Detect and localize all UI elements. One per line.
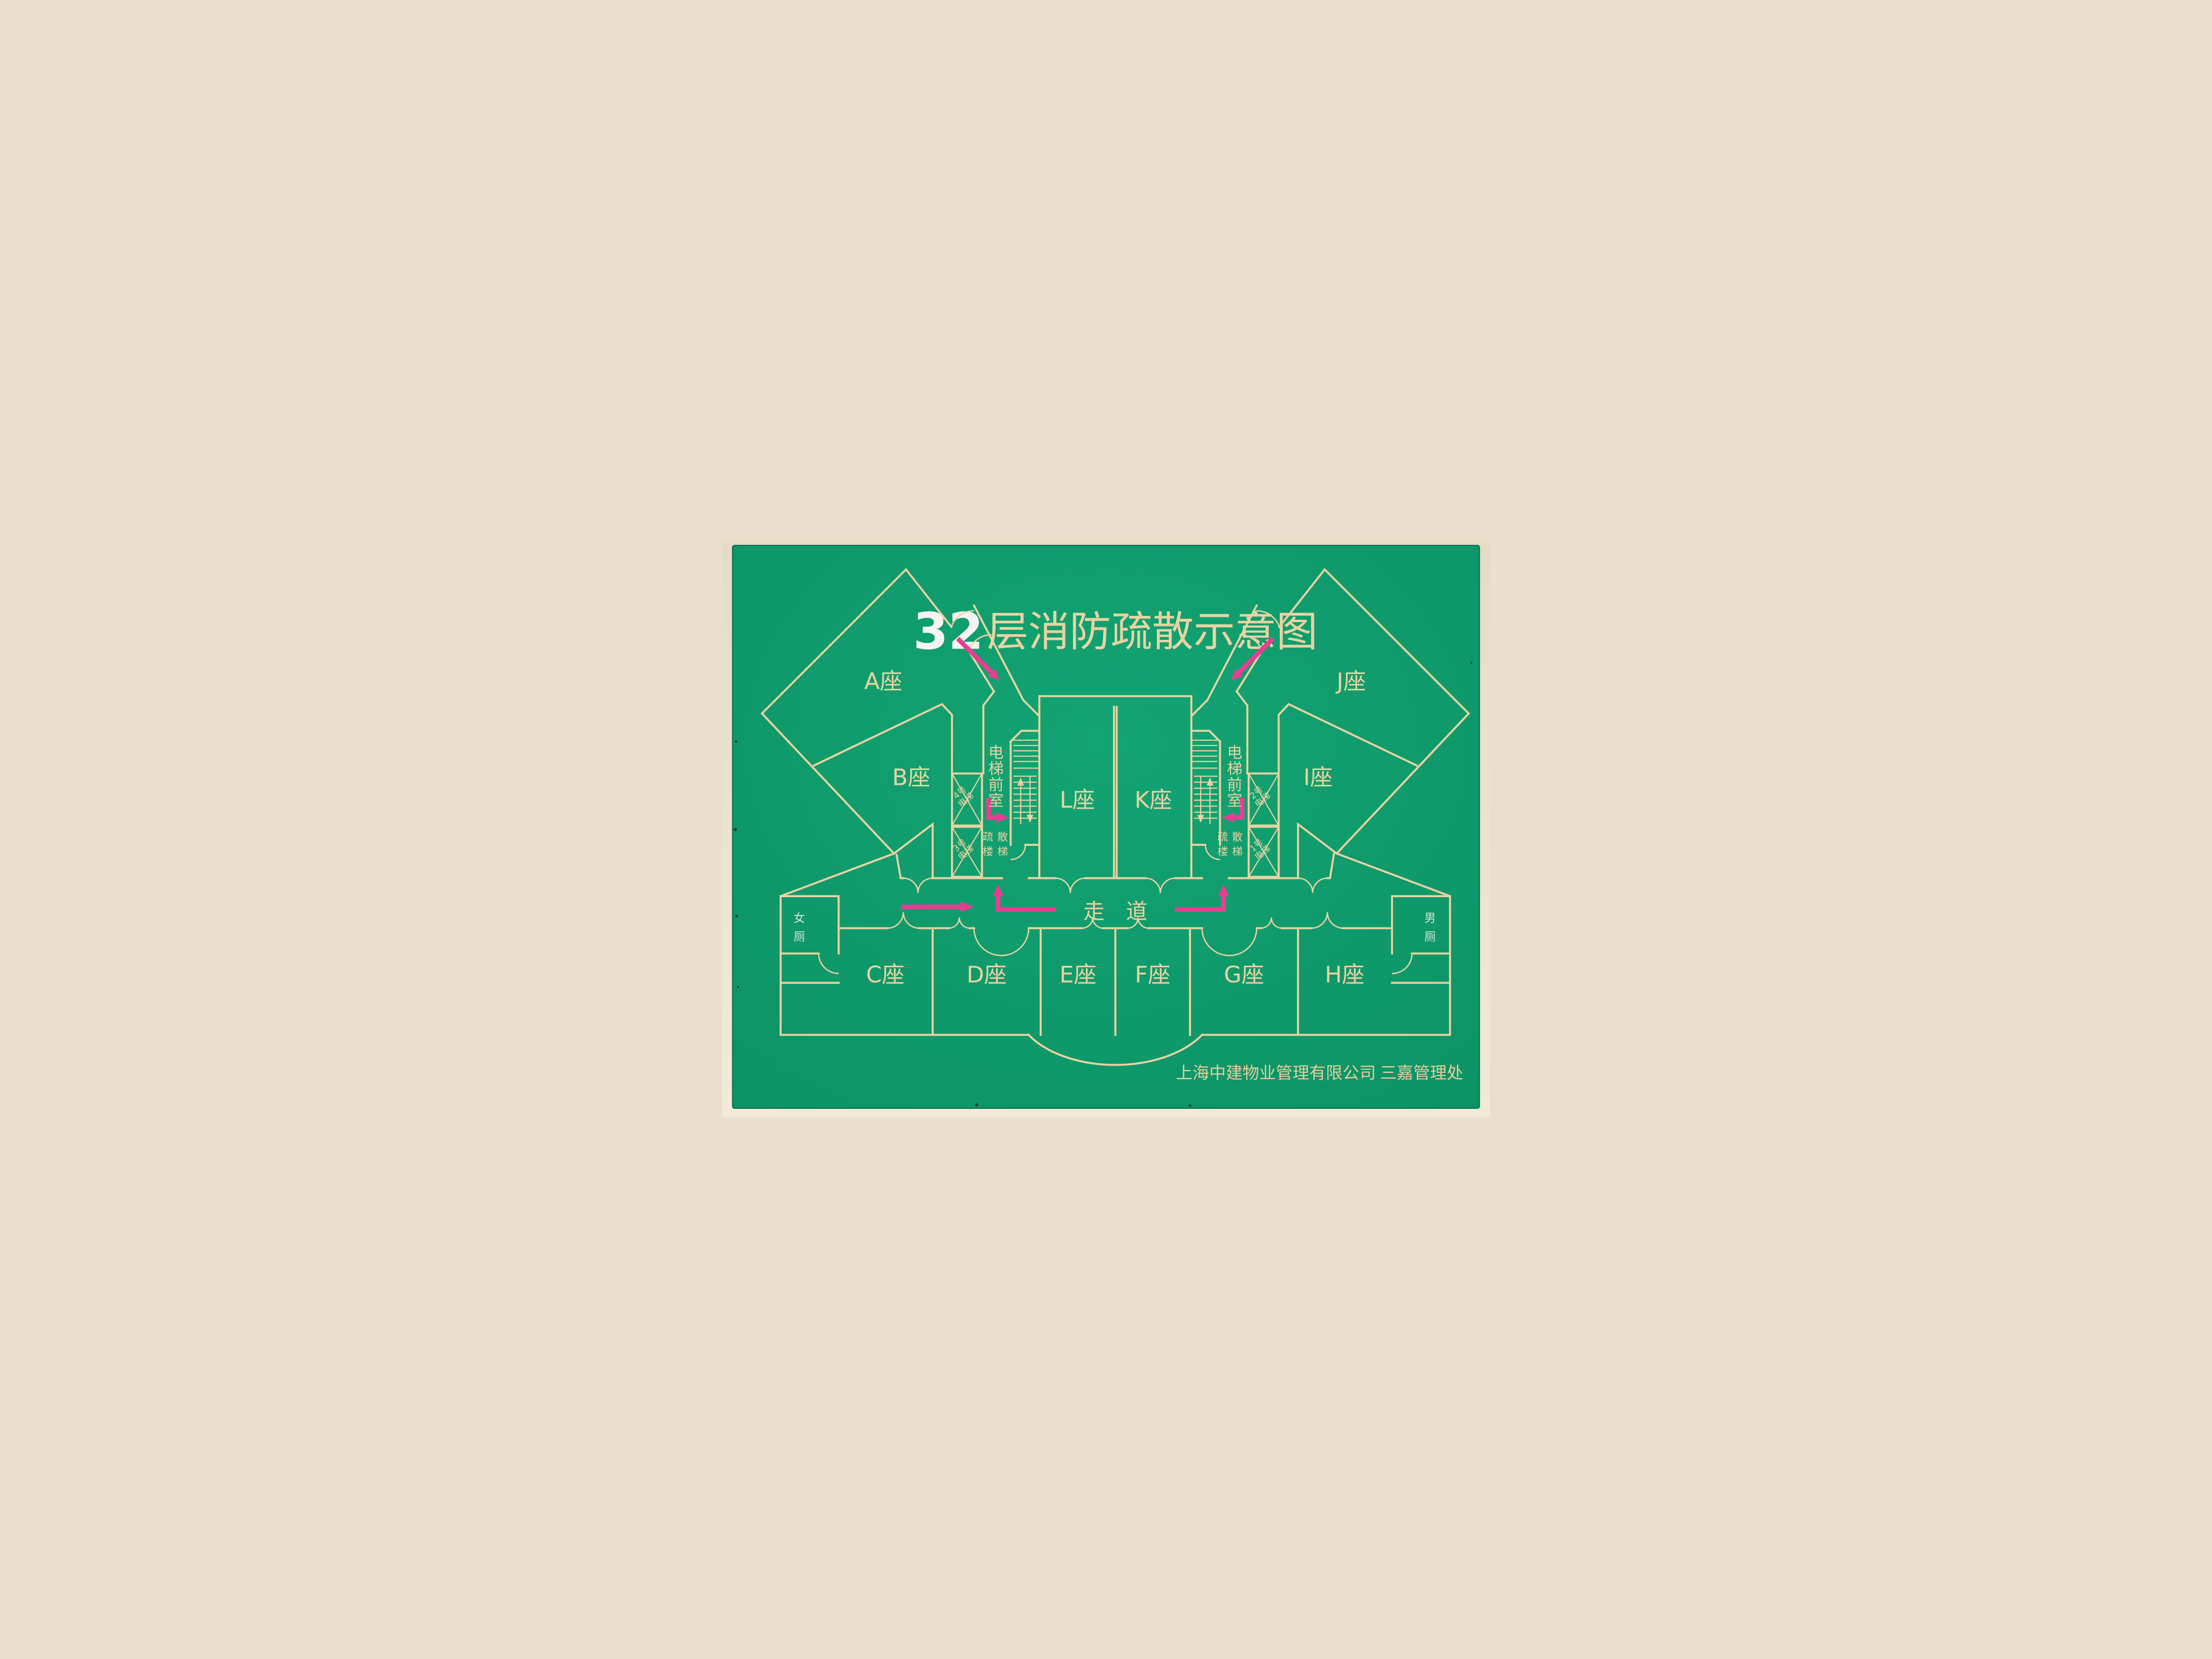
stair-label-left-char: 楼: [983, 846, 993, 858]
fire-evacuation-floor-plan: 32 层消防疏散示意图: [722, 541, 1490, 1118]
photo-of-evacuation-sign: 32 层消防疏散示意图: [722, 541, 1490, 1118]
lobby-left-char: 电: [988, 744, 1004, 762]
stair-label-right-char: 楼: [1217, 846, 1228, 858]
stair-label-right-char: 疏: [1217, 831, 1228, 843]
block-label-b: B座: [892, 764, 931, 791]
lobby-right-char: 梯: [1227, 759, 1242, 778]
male-toilet-char: 男: [1424, 912, 1436, 925]
lobby-right-char: 室: [1227, 792, 1242, 810]
management-company-footer: 上海中建物业管理有限公司 三嘉管理处: [1176, 1064, 1464, 1082]
block-label-g: G座: [1224, 962, 1264, 988]
lobby-right-char: 电: [1227, 744, 1242, 762]
lobby-left-char: 梯: [988, 759, 1004, 778]
block-label-c: C座: [866, 962, 904, 988]
block-label-h: H座: [1325, 962, 1365, 988]
block-label-f: F座: [1135, 962, 1170, 988]
corridor-char: 道: [1126, 900, 1147, 924]
female-toilet-char: 厕: [793, 930, 805, 944]
block-label-a: A座: [864, 668, 902, 695]
stair-label-left-char: 梯: [998, 846, 1008, 858]
stair-label-right-char: 梯: [1232, 846, 1243, 858]
lobby-left-char: 室: [988, 792, 1004, 810]
title-suffix: 层消防疏散示意图: [987, 608, 1318, 656]
stair-label-left-char: 散: [998, 831, 1008, 843]
male-toilet-char: 厕: [1424, 930, 1436, 944]
block-label-d: D座: [967, 962, 1007, 988]
block-label-e: E座: [1059, 962, 1096, 988]
stair-label-left-char: 疏: [983, 831, 993, 843]
corridor-char: 走: [1083, 900, 1105, 924]
lobby-right-char: 前: [1227, 775, 1242, 793]
block-label-l: L座: [1060, 787, 1095, 814]
female-toilet-char: 女: [793, 912, 805, 925]
block-label-k: K座: [1135, 787, 1172, 814]
block-label-i: I座: [1303, 764, 1333, 791]
block-label-j: J座: [1335, 668, 1366, 695]
stair-label-right-char: 散: [1232, 831, 1243, 843]
lobby-left-char: 前: [988, 775, 1004, 793]
